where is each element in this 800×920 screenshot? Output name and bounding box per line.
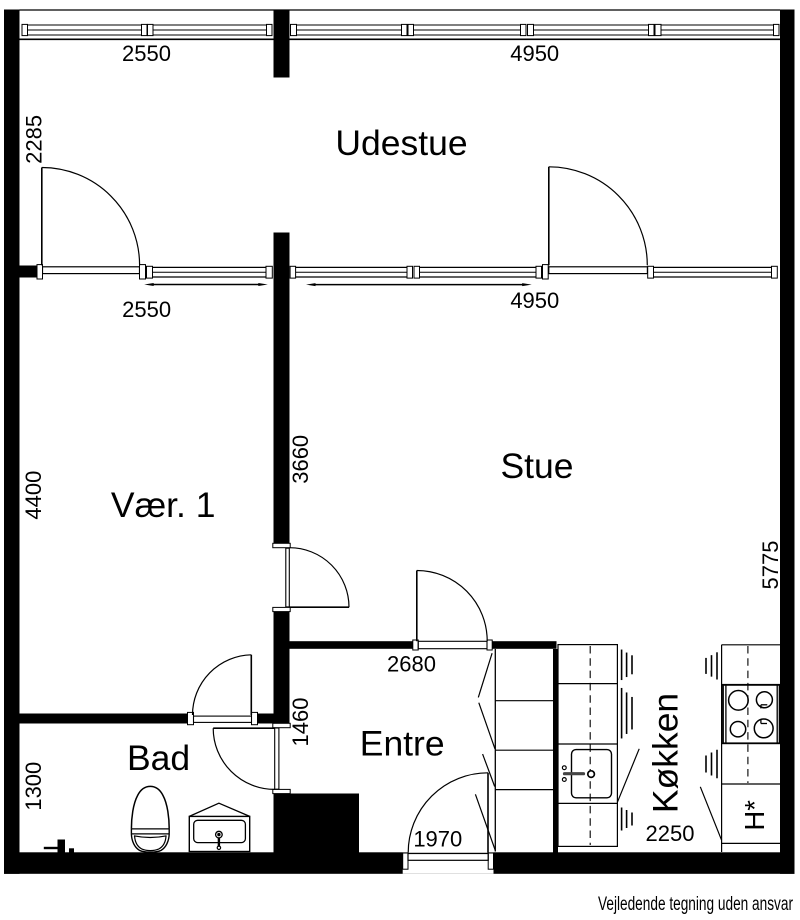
svg-text:Udestue: Udestue [335,123,467,163]
svg-text:Entre: Entre [360,723,445,763]
svg-text:2250: 2250 [646,821,695,846]
svg-text:Vejledende tegning uden ansvar: Vejledende tegning uden ansvar [598,894,793,915]
svg-text:3660: 3660 [288,435,313,484]
svg-text:4950: 4950 [510,288,559,313]
svg-text:Stue: Stue [500,446,573,486]
svg-text:4950: 4950 [510,41,559,66]
svg-text:2550: 2550 [122,297,171,322]
svg-text:1970: 1970 [413,827,462,852]
svg-text:H*: H* [739,800,770,831]
svg-text:1300: 1300 [21,762,46,811]
svg-text:2550: 2550 [122,41,171,66]
svg-text:Vær. 1: Vær. 1 [111,485,216,525]
svg-text:4400: 4400 [21,471,46,520]
svg-text:2285: 2285 [21,115,46,164]
svg-text:5775: 5775 [758,541,783,590]
svg-text:2680: 2680 [387,652,436,677]
svg-text:Køkken: Køkken [646,693,686,813]
svg-text:1460: 1460 [288,698,313,747]
svg-text:Bad: Bad [127,738,190,778]
